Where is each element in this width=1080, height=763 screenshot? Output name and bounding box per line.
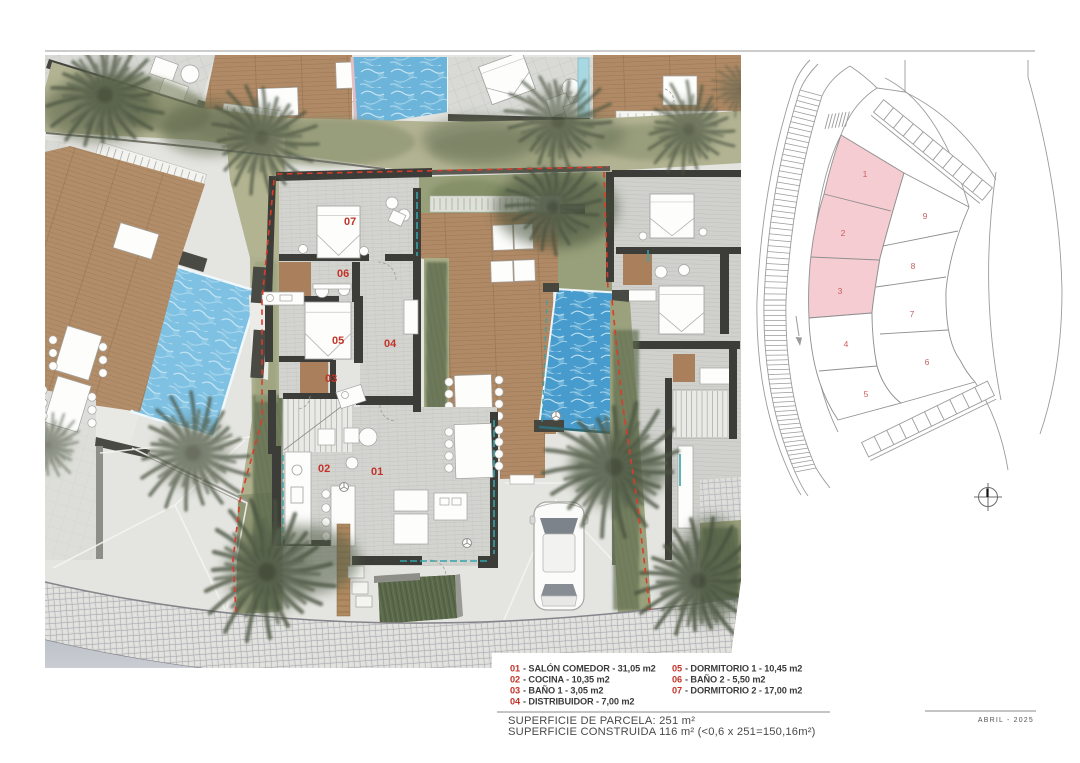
svg-text:04: 04 <box>384 338 397 350</box>
svg-text:5: 5 <box>864 389 869 399</box>
svg-text:3: 3 <box>838 286 843 296</box>
svg-text:2: 2 <box>841 228 846 238</box>
svg-text:06: 06 <box>337 268 349 280</box>
svg-text:- COCINA - 10,35 m2: - COCINA - 10,35 m2 <box>523 675 610 685</box>
svg-text:01: 01 <box>510 664 520 674</box>
svg-text:- DORMITORIO 1 - 10,45 m2: - DORMITORIO 1 - 10,45 m2 <box>685 664 802 674</box>
svg-text:- BAÑO 2 - 5,50 m2: - BAÑO 2 - 5,50 m2 <box>685 675 765 685</box>
svg-text:6: 6 <box>925 357 930 367</box>
svg-text:4: 4 <box>844 339 849 349</box>
svg-text:03: 03 <box>510 686 520 696</box>
svg-text:9: 9 <box>923 211 928 221</box>
svg-text:8: 8 <box>911 261 916 271</box>
svg-text:02: 02 <box>510 675 520 685</box>
svg-text:06: 06 <box>672 675 682 685</box>
svg-text:SUPERFICIE CONSTRUIDA 116 m² (: SUPERFICIE CONSTRUIDA 116 m² (<0,6 x 251… <box>508 726 816 738</box>
svg-text:05: 05 <box>672 664 682 674</box>
svg-text:05: 05 <box>332 335 344 347</box>
svg-text:1: 1 <box>863 169 868 179</box>
svg-text:03: 03 <box>325 373 337 385</box>
svg-text:- BAÑO 1 - 3,05 m2: - BAÑO 1 - 3,05 m2 <box>523 686 603 696</box>
svg-text:- SALÓN COMEDOR - 31,05 m2: - SALÓN COMEDOR - 31,05 m2 <box>523 663 656 674</box>
svg-text:ABRIL - 2025: ABRIL - 2025 <box>978 717 1034 724</box>
svg-text:07: 07 <box>344 216 356 228</box>
svg-text:- DORMITORIO 2 - 17,00 m2: - DORMITORIO 2 - 17,00 m2 <box>685 686 802 696</box>
svg-text:7: 7 <box>910 309 915 319</box>
svg-text:- DISTRIBUIDOR - 7,00 m2: - DISTRIBUIDOR - 7,00 m2 <box>523 697 634 707</box>
svg-text:04: 04 <box>510 697 521 707</box>
svg-text:02: 02 <box>318 463 330 475</box>
svg-text:07: 07 <box>672 686 682 696</box>
svg-text:01: 01 <box>371 466 383 478</box>
